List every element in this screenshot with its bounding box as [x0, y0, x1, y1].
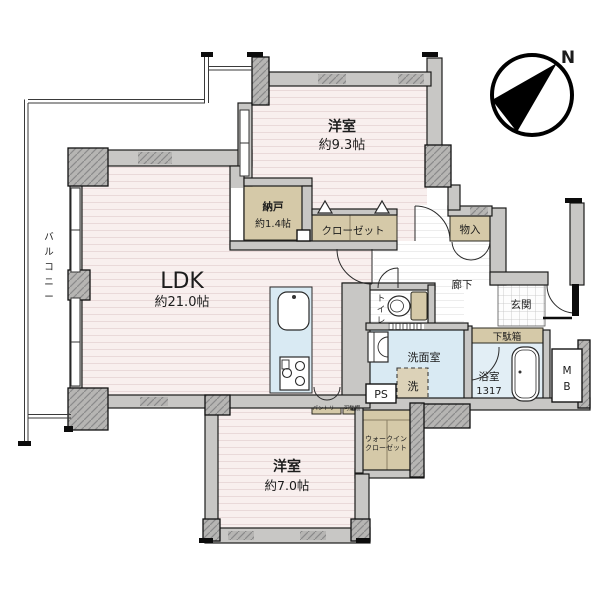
western1-label: 洋室 — [328, 118, 356, 135]
svg-text:イ: イ — [377, 305, 386, 315]
floorplan: N 洋室 約9.3帖 LDK 約21.0帖 洋室 約7.0帖 納戸 約1.4帖 … — [0, 0, 600, 600]
western2-size: 約7.0帖 — [265, 478, 310, 493]
ldk-label: LDK — [160, 269, 204, 294]
bathroom-label: 浴室 — [479, 370, 500, 383]
storage-room-box — [244, 186, 302, 240]
wic-label-line1: ウォークイン — [365, 435, 407, 443]
storage-inner-box — [297, 230, 310, 241]
shelf-label: 可動棚 — [344, 404, 360, 412]
storage-size: 約1.4帖 — [255, 217, 291, 230]
compass-north-label: N — [561, 48, 575, 68]
bathroom-size: 1317 — [476, 386, 501, 397]
toilet-tank — [411, 292, 427, 320]
svg-text:バ: バ — [44, 232, 54, 243]
closet-label: クローゼット — [322, 225, 385, 237]
hallway-label: 廊下 — [452, 278, 473, 291]
storage-door-opening — [231, 188, 243, 240]
north-compass: N — [492, 48, 575, 135]
western2-label: 洋室 — [273, 458, 301, 475]
storage-label: 納戸 — [263, 200, 284, 213]
western1-size: 約9.3帖 — [319, 138, 366, 153]
entrance-door-arc — [547, 285, 575, 313]
pipe-space-label: PS — [374, 388, 388, 401]
entrance-door-leaf — [572, 284, 579, 316]
toilet-label: ト イ レ — [377, 294, 386, 326]
svg-text:B: B — [563, 381, 570, 393]
balcony-label: バ ル コ ニ ー — [44, 232, 54, 303]
svg-text:ー: ー — [44, 292, 54, 303]
ldk-size: 約21.0帖 — [155, 295, 210, 310]
shoe-cabinet-label: 下駄箱 — [493, 331, 522, 343]
washer-label: 洗 — [408, 380, 419, 393]
svg-text:コ: コ — [44, 262, 54, 273]
kitchen-stove — [280, 357, 309, 390]
kitchen-faucet — [292, 295, 296, 299]
entrance-label: 玄関 — [511, 298, 532, 311]
svg-text:M: M — [562, 365, 571, 377]
bathtub — [512, 347, 539, 401]
svg-text:ト: ト — [377, 294, 386, 304]
svg-text:ニ: ニ — [44, 277, 54, 288]
hall-closet-label: 物入 — [460, 223, 481, 236]
svg-text:ル: ル — [44, 247, 54, 258]
bathtub-drain — [519, 371, 522, 374]
floorplan-page: N 洋室 約9.3帖 LDK 約21.0帖 洋室 約7.0帖 納戸 約1.4帖 … — [0, 0, 600, 600]
svg-text:レ: レ — [377, 316, 386, 326]
toilet-bowl — [388, 296, 410, 316]
pantry-label: パントリー — [312, 405, 339, 412]
wic-label-line2: クローゼット — [365, 443, 407, 452]
washroom-label: 洗面室 — [408, 350, 441, 364]
